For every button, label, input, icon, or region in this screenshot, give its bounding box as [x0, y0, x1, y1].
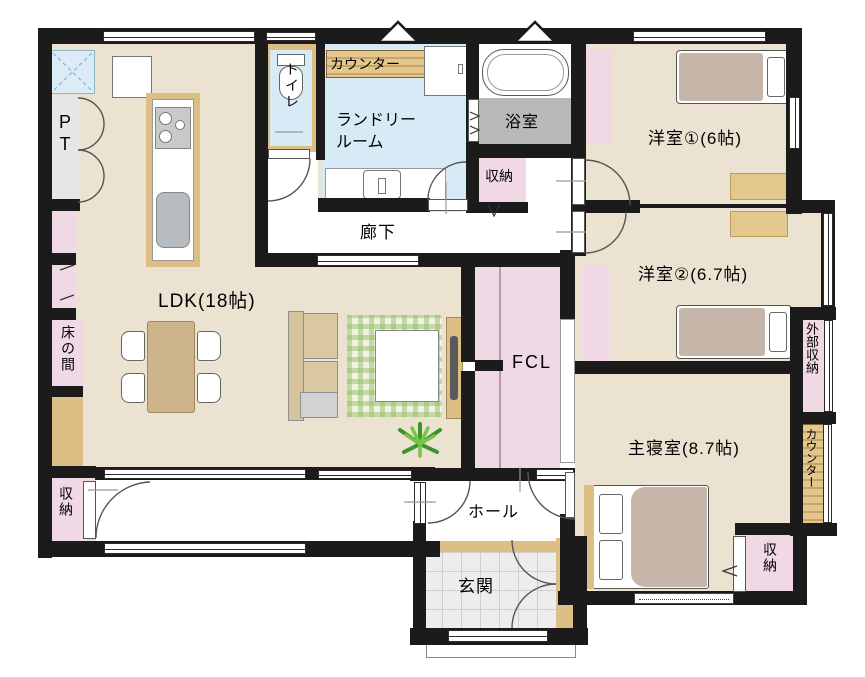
wall: [466, 202, 528, 213]
sliding-door: [317, 255, 419, 266]
laundry-label-line2: ルーム: [336, 132, 416, 154]
kitchen-sink: [156, 192, 190, 248]
room1-bed-pillow: [767, 57, 785, 97]
sofa-side-table: [300, 392, 338, 418]
floor-plan: LDK(18帖) PT トイレ カウンター ランドリー ルーム 浴室 収納 廊下…: [0, 0, 865, 677]
room2-desk: [730, 211, 788, 237]
wall: [38, 386, 83, 397]
room1-desk: [730, 173, 788, 200]
room1-label: 洋室①(6帖): [648, 124, 742, 149]
wall: [461, 267, 475, 362]
window: [104, 543, 306, 554]
washing-machine-knob: [458, 64, 463, 74]
toilet-label: トイレ: [282, 62, 302, 110]
door-panel: [428, 199, 468, 211]
stove-burner-2: [175, 120, 185, 130]
door-panel: [83, 481, 96, 539]
wall: [255, 44, 268, 267]
wall: [413, 521, 426, 645]
wall: [318, 198, 430, 212]
laundry-counter-label: カウンター: [330, 54, 400, 74]
room1-bed-blanket: [679, 53, 763, 101]
master-bed-blanket: [631, 487, 707, 587]
wall: [38, 253, 76, 265]
room2-closet: [582, 266, 610, 361]
storage-bath-label: 収納: [485, 166, 513, 186]
window: [318, 470, 412, 479]
master-label: 主寝室(8.7帖): [628, 434, 740, 459]
wall: [575, 361, 801, 374]
window: [633, 31, 766, 42]
wall: [466, 144, 575, 158]
door-panel: [572, 158, 585, 205]
sofa-cushion: [303, 313, 338, 359]
tv: [450, 336, 458, 400]
genkan-step: [423, 541, 556, 552]
dining-table: [147, 321, 195, 413]
fcl-shelf: [560, 319, 575, 463]
wall: [316, 44, 325, 160]
pantry-label: PT: [54, 112, 75, 156]
door-panel: [565, 472, 575, 518]
tokonoma-label: 床の間: [58, 325, 78, 373]
storage-sw-label: 収納: [56, 486, 76, 518]
laundry-label-line1: ランドリー: [336, 110, 416, 132]
storage-master-label: 収納: [760, 542, 780, 574]
genkan-label: 玄関: [458, 572, 494, 597]
fcl-label: FCL: [512, 352, 552, 373]
wall: [735, 523, 837, 535]
refrigerator: [112, 56, 152, 98]
stove-burner-1: [159, 112, 172, 125]
wall: [38, 308, 76, 320]
corridor-floor-c: [527, 148, 575, 258]
dining-chair: [121, 331, 145, 361]
master-bed-pillow: [599, 494, 623, 534]
room2-label: 洋室②(6.7帖): [638, 260, 748, 285]
window: [103, 31, 255, 42]
window: [789, 97, 800, 149]
wall: [461, 371, 475, 470]
wall: [38, 199, 80, 211]
window: [823, 424, 832, 523]
hatch-square: [50, 50, 95, 94]
door-panel: [572, 211, 585, 253]
room1-closet: [584, 50, 612, 144]
bathtub-inner: [487, 54, 564, 91]
wall: [38, 28, 52, 558]
door-panel: [268, 149, 310, 159]
wall: [573, 536, 587, 643]
veranda-floor: [95, 478, 415, 542]
bath-door: [468, 99, 479, 142]
laundry-sink-basin: [378, 178, 386, 194]
ldk-label: LDK(18帖): [158, 286, 256, 313]
window: [104, 469, 306, 479]
wall: [790, 412, 836, 424]
tokonoma-board: [52, 396, 83, 467]
hall-glass-door: [414, 482, 426, 524]
master-window: [634, 593, 734, 604]
porch: [426, 645, 576, 658]
window: [824, 320, 833, 412]
bath-label: 浴室: [505, 108, 539, 132]
master-bed-pillow: [599, 540, 623, 580]
closet-left-2: [50, 264, 75, 309]
coffee-table: [375, 330, 439, 402]
dining-chair: [197, 373, 221, 403]
wall: [640, 204, 788, 208]
room2-bed-blanket: [679, 308, 765, 356]
dining-chair: [121, 373, 145, 403]
window: [823, 213, 833, 306]
hall-label: ホール: [468, 498, 519, 522]
stove-burner-3: [159, 130, 172, 143]
wall: [38, 466, 96, 478]
entrance-door: [448, 630, 548, 642]
dining-chair: [197, 331, 221, 361]
wall: [560, 250, 575, 319]
hallway-label: 廊下: [360, 218, 396, 243]
counter-right-label: カウンター: [803, 428, 820, 488]
closet-left-1: [50, 208, 75, 254]
room2-bed-pillow: [769, 312, 787, 352]
external-storage-label: 外部収納: [802, 322, 821, 374]
wall: [475, 360, 503, 371]
window: [266, 32, 316, 41]
door-panel: [733, 536, 746, 592]
laundry-label: ランドリー ルーム: [336, 110, 416, 154]
